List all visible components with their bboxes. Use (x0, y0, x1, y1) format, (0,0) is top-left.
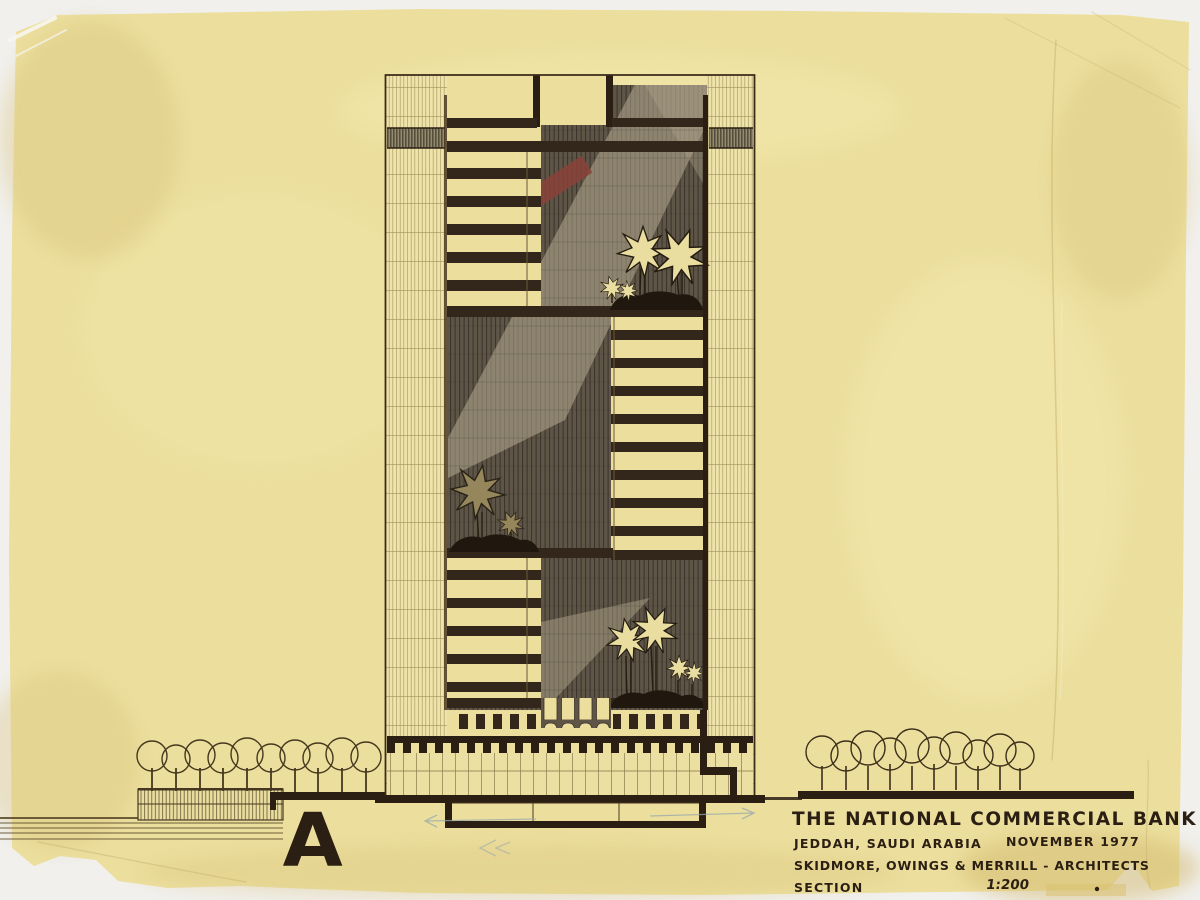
title-scale: 1:200 (985, 877, 1030, 893)
title-architects: SKIDMORE, OWINGS & MERRILL - ARCHITECTS (794, 858, 1150, 873)
right-facade-band (707, 75, 755, 795)
ink-dot (1095, 887, 1099, 891)
architectural-drawing-sheet: A THE NATIONAL COMMERCIAL BANK JEDDAH, S… (0, 0, 1200, 900)
floor-slab (447, 141, 707, 152)
floor-stack-upper-left (447, 152, 541, 306)
ground-line-right (798, 791, 1134, 799)
title-location: JEDDAH, SAUDI ARABIA (794, 836, 982, 851)
section-drawing (0, 0, 1200, 900)
section-marker-label: A (283, 804, 343, 878)
left-facade-band (385, 75, 447, 795)
floor-stack-mid-right (611, 317, 707, 560)
title-project: THE NATIONAL COMMERCIAL BANK (792, 809, 1197, 830)
paper-stain (1046, 884, 1126, 896)
tower-section (375, 75, 765, 828)
title-drawing-type: SECTION (794, 880, 863, 895)
title-date: NOVEMBER 1977 (1006, 834, 1140, 849)
tree-plinth-wall (138, 788, 283, 820)
ground-slab (375, 795, 765, 803)
